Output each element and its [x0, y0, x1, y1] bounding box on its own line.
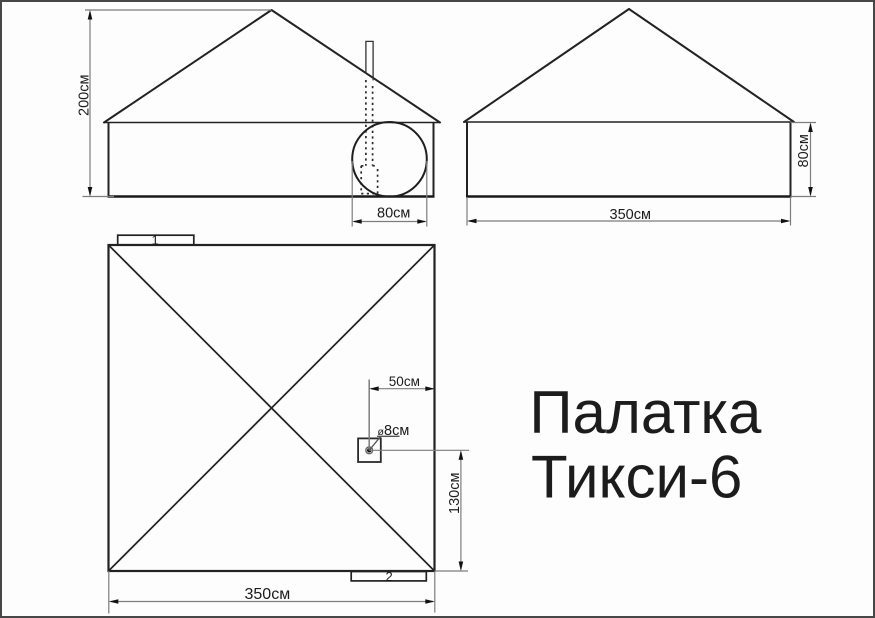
svg-text:1: 1 — [152, 232, 159, 247]
svg-text:8см: 8см — [384, 423, 409, 439]
svg-text:2: 2 — [386, 569, 393, 584]
svg-text:80см: 80см — [796, 134, 812, 167]
svg-text:Тикси-6: Тикси-6 — [531, 444, 742, 511]
svg-text:350см: 350см — [610, 207, 651, 223]
svg-text:80см: 80см — [377, 206, 410, 222]
svg-text:200см: 200см — [77, 75, 93, 116]
svg-text:350см: 350см — [245, 586, 291, 603]
svg-text:50см: 50см — [389, 374, 420, 389]
svg-text:130см: 130см — [447, 473, 463, 514]
svg-text:Палатка: Палатка — [529, 379, 762, 446]
